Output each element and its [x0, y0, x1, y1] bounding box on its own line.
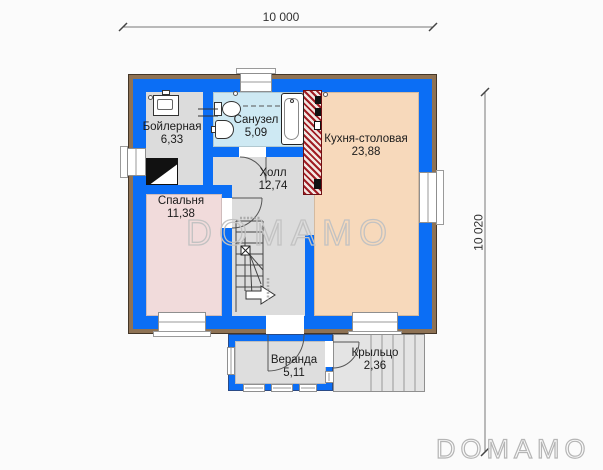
room-name: Холл — [218, 167, 328, 180]
brand-logo: DOMAMO — [436, 434, 591, 465]
room-area: 2,36 — [320, 360, 430, 373]
floor-plan-canvas: 10 000 10 020 — [0, 0, 603, 470]
room-label-hall: Холл 12,74 — [218, 167, 328, 193]
dimension-right-label: 10 020 — [472, 193, 485, 273]
room-label-porch: Крыльцо 2,36 — [320, 347, 430, 373]
room-area: 11,38 — [126, 208, 236, 221]
dimension-top-label: 10 000 — [231, 10, 331, 24]
room-name: Спальня — [126, 195, 236, 208]
room-area: 5,09 — [201, 127, 311, 140]
room-label-bedroom: Спальня 11,38 — [126, 195, 236, 221]
room-label-bathroom: Санузел 5,09 — [201, 114, 311, 140]
room-area: 12,74 — [218, 180, 328, 193]
room-name: Крыльцо — [320, 347, 430, 360]
room-area: 23,88 — [311, 146, 421, 159]
room-name: Кухня-столовая — [311, 133, 421, 146]
room-name: Санузел — [201, 114, 311, 127]
room-label-kitchen: Кухня-столовая 23,88 — [311, 133, 421, 159]
